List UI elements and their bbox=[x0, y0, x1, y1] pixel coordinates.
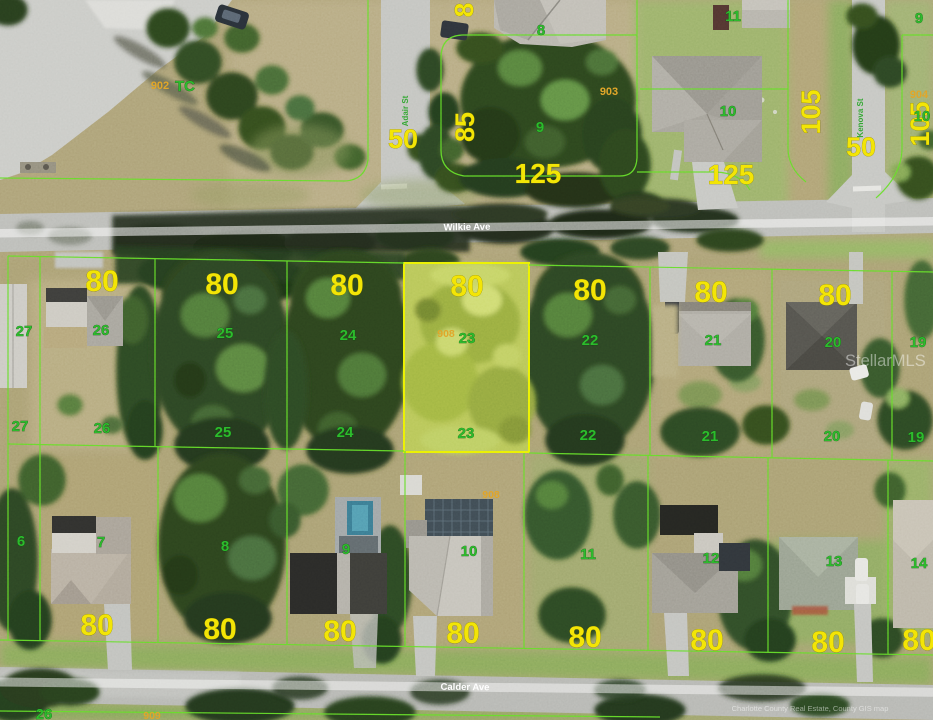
svg-text:StellarMLS: StellarMLS bbox=[845, 352, 926, 370]
svg-text:Charlotte County Real Estate,: Charlotte County Real Estate, County GIS… bbox=[732, 704, 889, 713]
